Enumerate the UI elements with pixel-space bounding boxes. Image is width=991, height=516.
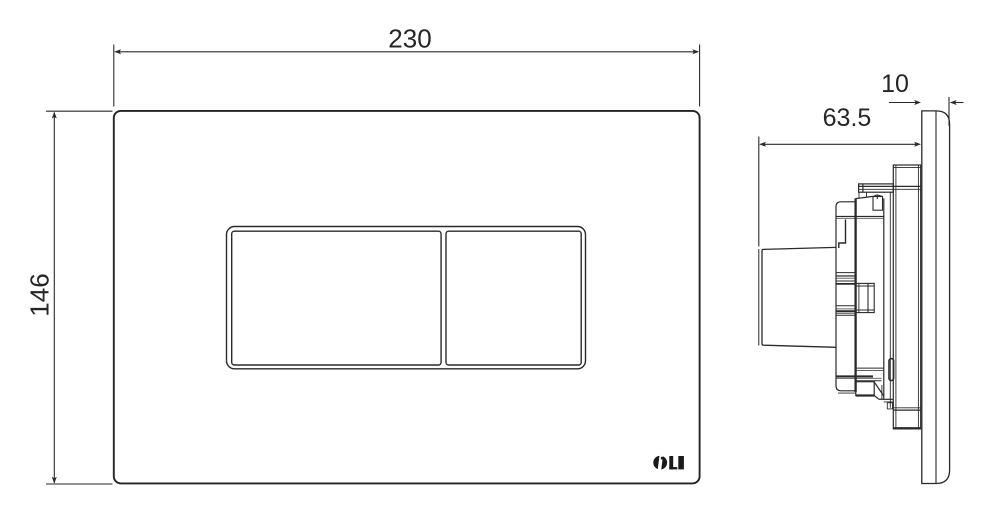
svg-text:230: 230 xyxy=(388,24,431,54)
svg-text:10: 10 xyxy=(881,70,909,98)
svg-text:146: 146 xyxy=(25,273,55,316)
svg-text:63.5: 63.5 xyxy=(823,104,872,132)
